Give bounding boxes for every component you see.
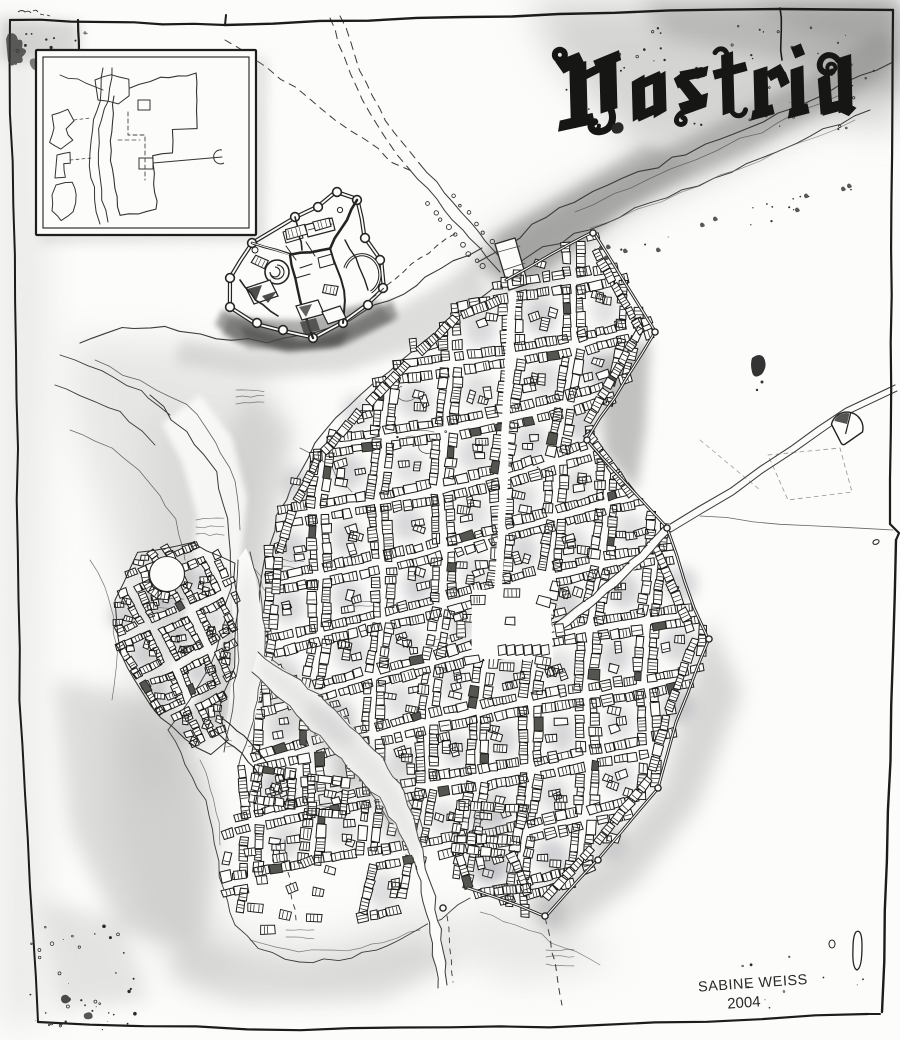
svg-text:2004: 2004 [727, 993, 761, 1012]
